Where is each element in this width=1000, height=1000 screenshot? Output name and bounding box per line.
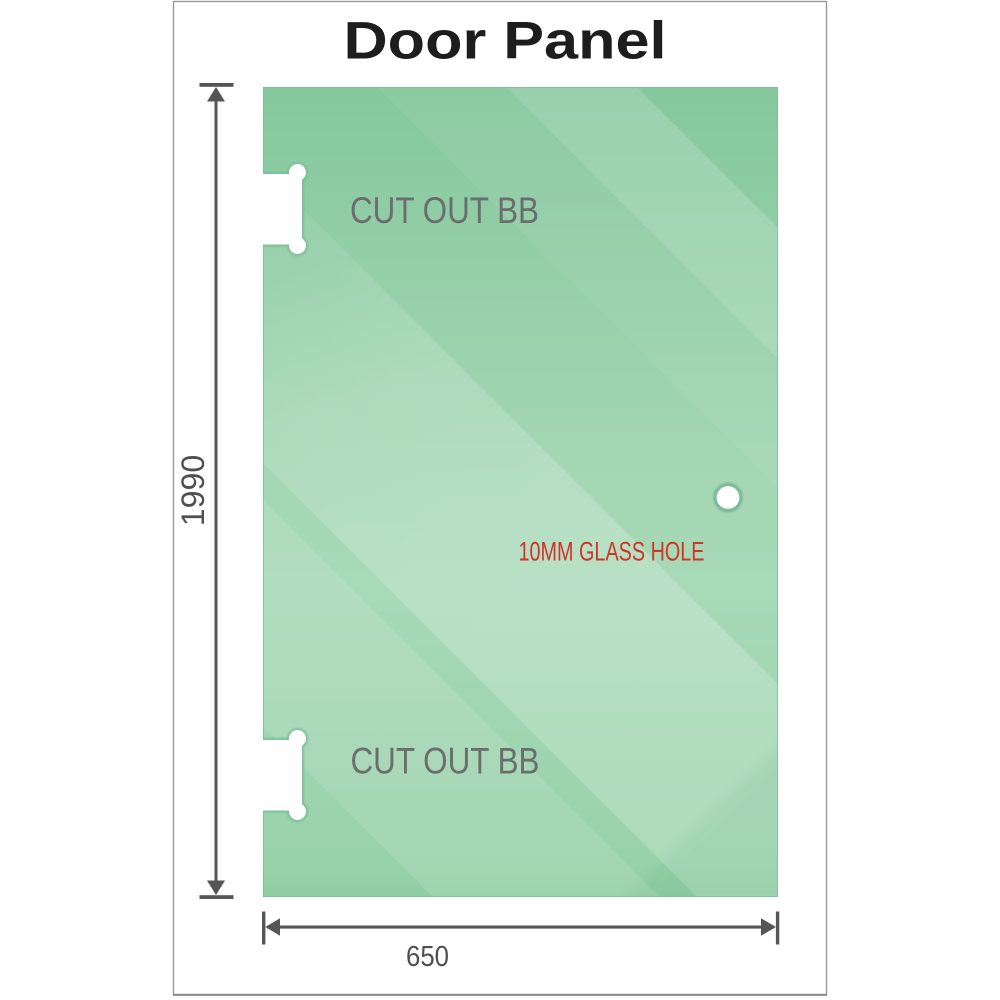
svg-text:Door Panel: Door Panel bbox=[344, 12, 667, 71]
svg-text:CUT OUT BB: CUT OUT BB bbox=[351, 741, 540, 782]
svg-text:CUT OUT BB: CUT OUT BB bbox=[350, 190, 539, 231]
svg-text:10MM GLASS HOLE: 10MM GLASS HOLE bbox=[519, 537, 705, 567]
svg-text:1990: 1990 bbox=[175, 455, 211, 527]
svg-text:650: 650 bbox=[406, 941, 449, 973]
